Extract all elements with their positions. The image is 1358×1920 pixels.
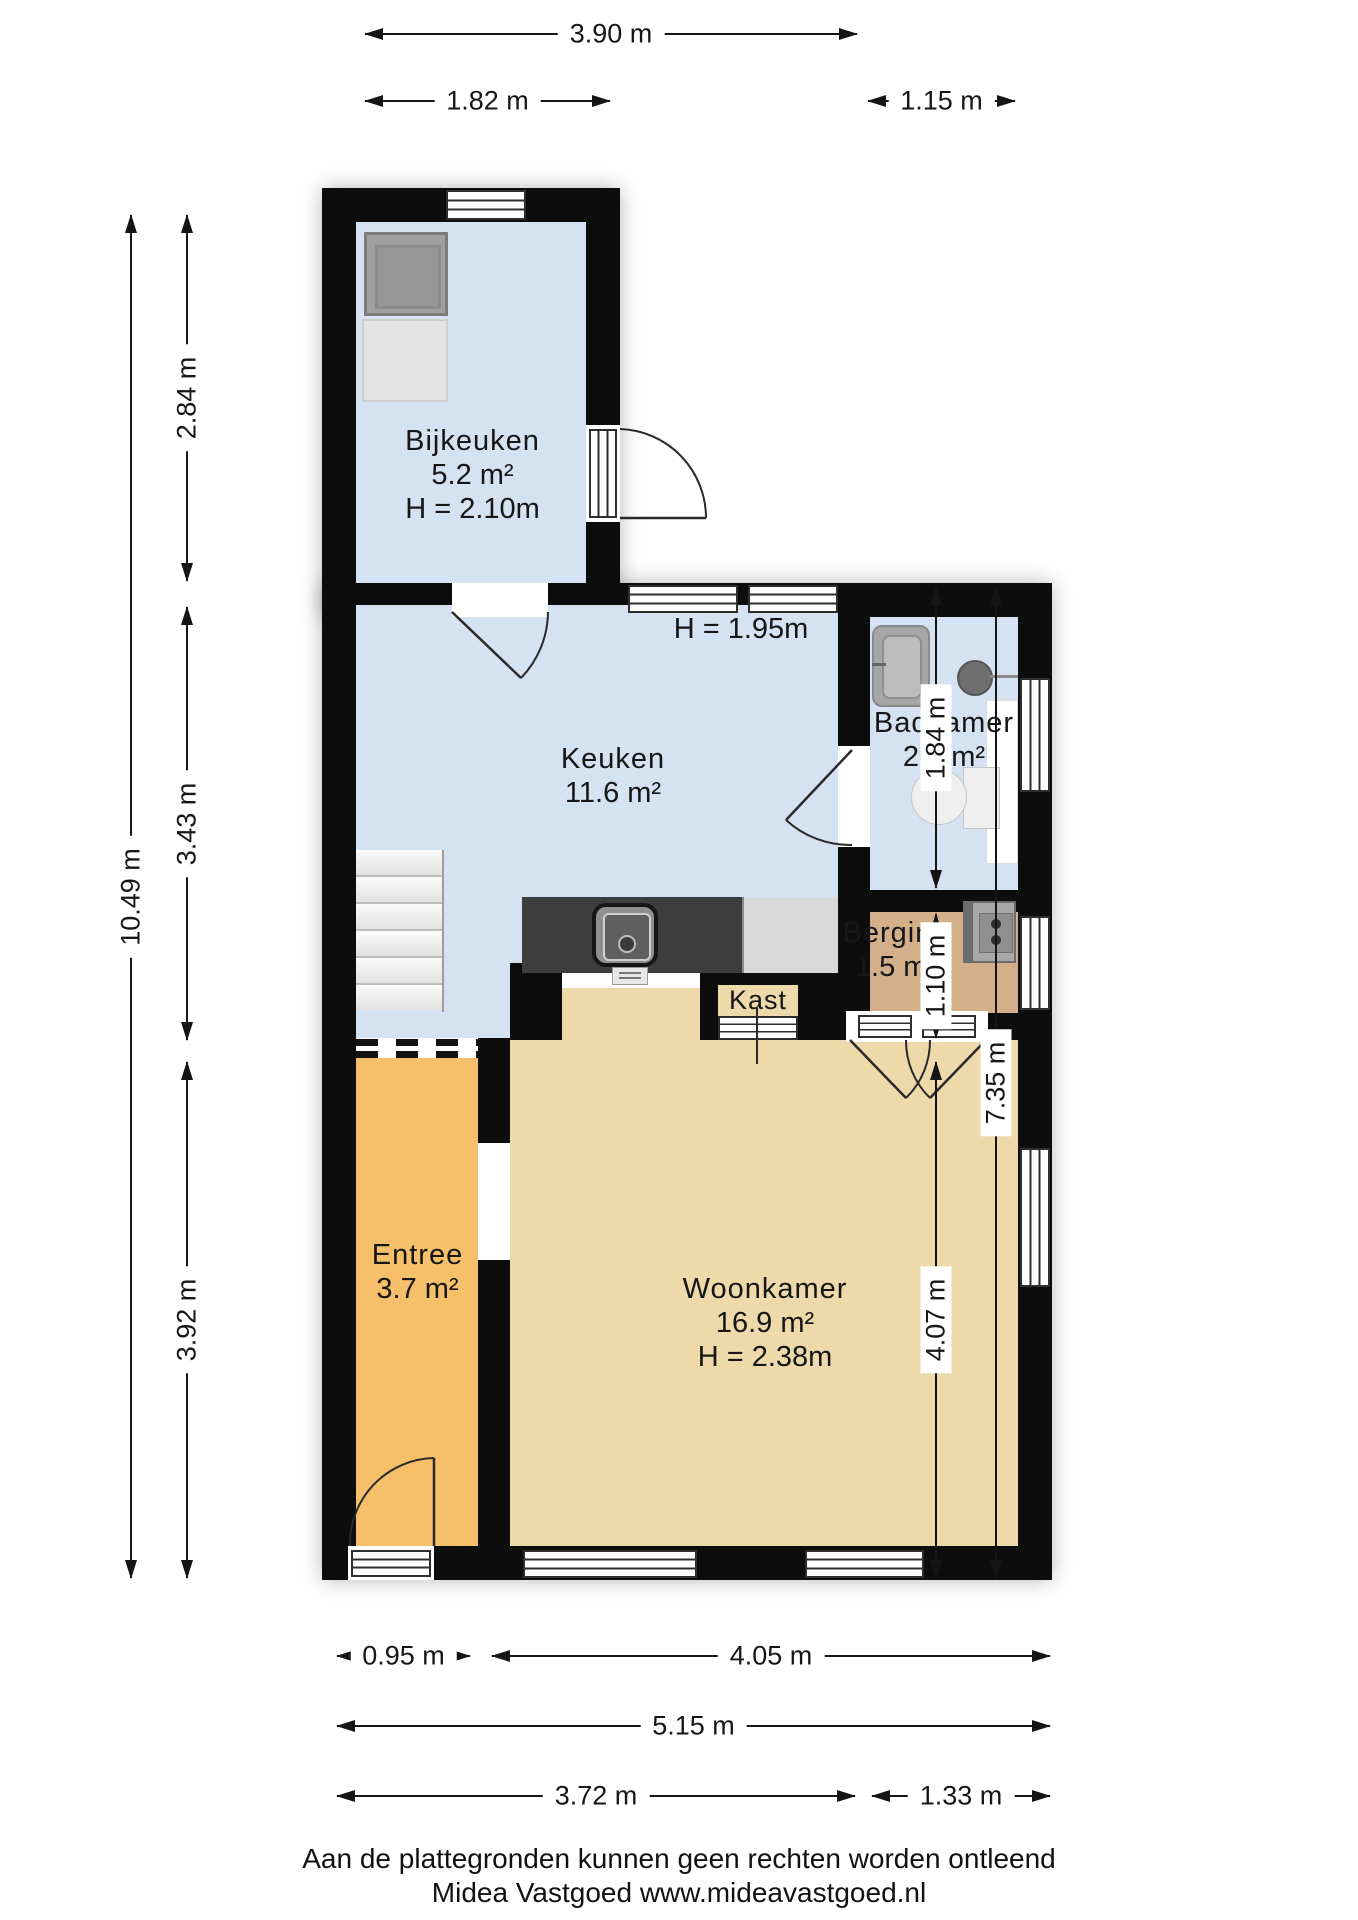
- bijkeuken-name: Bijkeuken: [360, 424, 585, 458]
- dimension-top-left: 1.82 m: [365, 100, 610, 102]
- dimension-right-woonkamer-label: 4.07 m: [921, 1267, 952, 1374]
- dimension-right-berging: 1.10 m: [935, 914, 937, 1038]
- dimension-left-total: 10.49 m: [130, 215, 132, 1578]
- stairs: [356, 850, 444, 1012]
- dimension-top-total-label: 3.90 m: [558, 19, 665, 50]
- dimension-top-right-label: 1.15 m: [888, 86, 995, 117]
- dimension-right-woonkamer: 4.07 m: [935, 1062, 937, 1578]
- woonkamer-side-window: [1020, 1148, 1050, 1287]
- dimension-bottom-entree: 0.95 m: [337, 1655, 470, 1657]
- kitchen-faucet-icon: [612, 967, 648, 985]
- dimension-top-right: 1.15 m: [868, 100, 1015, 102]
- keuken-ceiling-note: H = 1.95m: [650, 612, 832, 646]
- dimension-bottom-total: 5.15 m: [337, 1725, 1050, 1727]
- keuken-window-left: [628, 585, 738, 613]
- dimension-bottom-woonkamer: 4.05 m: [492, 1655, 1050, 1657]
- dimension-right-badkamer: 1.84 m: [935, 587, 937, 888]
- shower-head-icon: [957, 660, 993, 696]
- front-door-panel: [351, 1550, 431, 1577]
- dimension-left-top-label: 2.84 m: [172, 345, 203, 452]
- kast-name: Kast: [710, 986, 806, 1015]
- entree-name: Entree: [340, 1238, 495, 1272]
- floorplan-page: Bijkeuken 5.2 m² H = 2.10m H = 1.95m Keu…: [0, 0, 1358, 1920]
- keuken-area: 11.6 m²: [498, 776, 728, 810]
- woonkamer-window-left: [523, 1550, 697, 1578]
- bijkeuken-area: 5.2 m²: [360, 458, 585, 492]
- woonkamer-ceiling: H = 2.38m: [635, 1340, 895, 1374]
- footer-credit: Midea Vastgoed www.mideavastgoed.nl: [0, 1876, 1358, 1910]
- bijkeuken-ceiling: H = 2.10m: [360, 492, 585, 526]
- dimension-right-total-label: 7.35 m: [981, 1029, 1012, 1136]
- entree-area: 3.7 m²: [340, 1272, 495, 1306]
- kast-louver-door: [718, 1016, 798, 1040]
- berging-window: [1020, 916, 1050, 1010]
- dimension-right-badkamer-label: 1.84 m: [921, 684, 952, 791]
- label-keuken: Keuken 11.6 m²: [498, 742, 728, 810]
- label-keuken-ceiling-note: H = 1.95m: [650, 612, 832, 646]
- footer-disclaimer: Aan de plattegronden kunnen geen rechten…: [0, 1842, 1358, 1876]
- woonkamer-window-right: [805, 1550, 924, 1578]
- dimension-left-middle-label: 3.43 m: [172, 770, 203, 877]
- berging-door-left-panel: [858, 1015, 912, 1038]
- dimension-left-bottom-label: 3.92 m: [172, 1267, 203, 1374]
- label-kast: Kast: [710, 986, 806, 1015]
- berging-area: 1.5 m²: [806, 950, 986, 984]
- passage-dashes-bottom: [356, 1051, 478, 1058]
- bijkeuken-keuken-door-opening: [452, 583, 548, 617]
- dimension-top-total: 3.90 m: [365, 33, 857, 35]
- dimension-bottom-entree-label: 0.95 m: [350, 1641, 457, 1672]
- dimension-left-bottom: 3.92 m: [186, 1062, 188, 1578]
- dimension-bottom-woonkamer-label: 4.05 m: [718, 1641, 825, 1672]
- dimension-right-total: 7.35 m: [995, 587, 997, 1578]
- room-woonkamer-notch: [562, 988, 700, 1040]
- keuken-name: Keuken: [498, 742, 728, 776]
- dimension-bottom-lower-right-label: 1.33 m: [908, 1781, 1015, 1812]
- room-keuken-floor-sliver: [510, 897, 522, 963]
- washing-machine-icon: [364, 232, 448, 316]
- dimension-left-top: 2.84 m: [186, 215, 188, 581]
- dimension-left-total-label: 10.49 m: [116, 836, 147, 958]
- kitchen-sink-drain: [618, 935, 636, 953]
- berging-name: Berging: [806, 916, 986, 950]
- dimension-bottom-total-label: 5.15 m: [640, 1711, 747, 1742]
- dimension-right-berging-label: 1.10 m: [921, 923, 952, 1030]
- dimension-top-left-label: 1.82 m: [434, 86, 541, 117]
- dimension-left-middle: 3.43 m: [186, 607, 188, 1040]
- label-bijkeuken: Bijkeuken 5.2 m² H = 2.10m: [360, 424, 585, 526]
- passage-dashes-top: [356, 1039, 478, 1046]
- bijkeuken-exterior-door-panel: [589, 429, 617, 518]
- label-entree: Entree 3.7 m²: [340, 1238, 495, 1306]
- keuken-window-right: [748, 585, 838, 613]
- label-woonkamer: Woonkamer 16.9 m² H = 2.38m: [635, 1272, 895, 1374]
- woonkamer-name: Woonkamer: [635, 1272, 895, 1306]
- woonkamer-area: 16.9 m²: [635, 1306, 895, 1340]
- dryer-icon: [362, 319, 448, 402]
- dimension-bottom-lower-right: 1.33 m: [872, 1795, 1050, 1797]
- dimension-bottom-lower-left-label: 3.72 m: [543, 1781, 650, 1812]
- bijkeuken-window: [446, 190, 526, 220]
- kitchen-sink-icon: [592, 903, 658, 967]
- label-berging: Berging 1.5 m²: [806, 916, 986, 984]
- dimension-bottom-lower-left: 3.72 m: [337, 1795, 855, 1797]
